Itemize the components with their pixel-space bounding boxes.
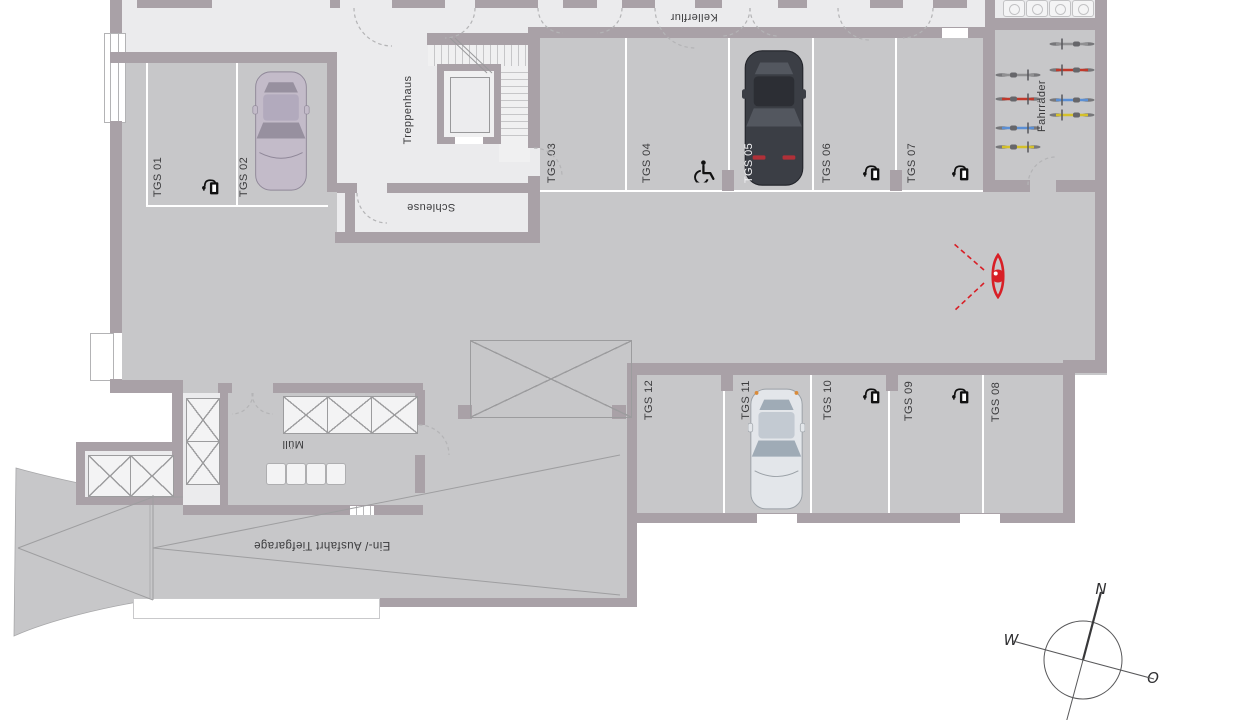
wall-segment	[76, 497, 176, 505]
wall-segment	[137, 0, 212, 8]
storage-box	[186, 398, 220, 442]
window-west-upper	[104, 33, 126, 123]
bicycle-icon	[1049, 63, 1095, 77]
viewpoint-eye-icon	[986, 253, 1010, 299]
wall-segment	[337, 183, 357, 193]
wall-segment	[387, 183, 528, 193]
wall-segment	[985, 18, 1095, 30]
wall-segment	[110, 121, 122, 333]
wall-segment	[110, 0, 122, 35]
room-label-schleuse: Schleuse	[407, 201, 455, 213]
stair-landing	[499, 140, 530, 162]
ev-charger-icon	[862, 164, 883, 182]
wall-segment	[345, 193, 355, 233]
wall-segment	[330, 0, 340, 8]
ev-charger-icon	[201, 178, 222, 196]
wall-segment	[983, 30, 995, 182]
spot-line	[895, 38, 897, 191]
bicycle-icon	[1049, 37, 1095, 51]
spot-label-tgs07: TGS 07	[906, 143, 918, 183]
wall-segment	[218, 383, 232, 393]
wall-segment	[502, 0, 538, 8]
storage-box	[130, 455, 174, 497]
bicycle-icon	[1049, 108, 1095, 122]
spot-label-tgs10: TGS 10	[822, 380, 834, 420]
wall-segment	[427, 33, 540, 45]
storage-locker	[371, 396, 418, 434]
wall-segment	[1063, 360, 1107, 373]
spot-line	[982, 375, 984, 514]
wall-segment	[627, 513, 1075, 523]
parked-car-white	[748, 386, 805, 512]
storage-locker	[327, 396, 373, 434]
ramp-label: Ein-/ Ausfahrt Tiefgarage	[254, 539, 391, 551]
corridor-floor	[540, 0, 985, 27]
wall-stub	[721, 373, 733, 391]
washing-machine	[1072, 0, 1094, 17]
compass-west-label: W	[1004, 631, 1019, 649]
spot-label-tgs08: TGS 08	[990, 382, 1002, 422]
wall-segment	[110, 52, 337, 63]
storage-box	[88, 455, 132, 497]
bicycle-icon	[995, 121, 1041, 135]
wheelchair-icon	[694, 160, 717, 183]
room-label-muell: Müll	[282, 438, 304, 450]
room-label-fahrraeder: Fahrräder	[1036, 80, 1048, 132]
ev-charger-icon	[862, 387, 883, 405]
window-west-lower	[90, 333, 114, 381]
spot-line	[540, 190, 983, 192]
room-label-kellerflur: Kellerflur	[670, 11, 717, 23]
waste-bin	[326, 463, 346, 485]
storage-locker	[283, 396, 329, 434]
spot-line	[146, 63, 148, 207]
waste-bin	[306, 463, 326, 485]
parking-row-bottom-floor	[627, 363, 1075, 523]
wall-segment	[335, 232, 540, 243]
compass-rose	[1013, 592, 1154, 720]
wall-segment	[528, 27, 995, 38]
spot-label-tgs02: TGS 02	[238, 157, 250, 197]
spot-label-tgs03: TGS 03	[546, 143, 558, 183]
washing-machine	[1049, 0, 1071, 17]
wall-segment	[695, 0, 722, 8]
wall-segment	[327, 52, 337, 192]
waste-bin	[286, 463, 306, 485]
wall-segment	[475, 0, 502, 8]
spot-line	[146, 205, 328, 207]
spot-label-tgs01: TGS 01	[152, 157, 164, 197]
spot-line	[625, 38, 627, 191]
wall-opening	[960, 514, 1000, 523]
compass-east-label: O	[1147, 669, 1159, 687]
elevator-door-gap	[455, 137, 483, 144]
spot-label-tgs04: TGS 04	[641, 143, 653, 183]
spot-line	[728, 38, 730, 191]
wall-segment	[983, 180, 1030, 192]
ev-charger-icon	[951, 387, 972, 405]
room-label-treppenhaus: Treppenhaus	[402, 76, 414, 145]
compass-north-label: N	[1095, 580, 1106, 598]
parked-car-silver	[250, 70, 312, 192]
wall-segment	[1063, 373, 1075, 523]
wall-stub	[886, 373, 898, 391]
spot-label-tgs05: TGS 05	[743, 143, 755, 183]
wall-stub	[890, 170, 902, 191]
wall-segment	[220, 393, 228, 505]
wall-segment	[76, 442, 85, 504]
washing-machine	[1003, 0, 1025, 17]
wall-segment	[76, 442, 180, 451]
garage-floorplan: Kellerflur Treppenhaus Schleuse Fahrräde…	[0, 0, 1240, 720]
wall-segment	[273, 383, 423, 393]
storage-box	[186, 441, 220, 485]
grate	[350, 506, 374, 515]
spot-label-tgs09: TGS 09	[903, 381, 915, 421]
spot-line	[888, 375, 890, 514]
bicycle-icon	[995, 68, 1041, 82]
wall-segment	[933, 0, 967, 8]
wall-stub	[722, 170, 734, 191]
bicycle-icon	[995, 140, 1041, 154]
wall-segment	[622, 0, 655, 8]
wall-segment	[183, 505, 423, 515]
spot-line	[810, 375, 812, 514]
wall-segment	[870, 0, 903, 8]
wall-segment	[778, 0, 807, 8]
wall-opening	[757, 514, 797, 523]
spot-label-tgs12: TGS 12	[643, 380, 655, 420]
wall-segment	[627, 363, 1063, 375]
garage-gate	[133, 598, 380, 619]
clearance-area	[470, 340, 632, 418]
ev-charger-icon	[951, 164, 972, 182]
spot-line	[812, 38, 814, 191]
door-threshold	[942, 28, 968, 38]
wall-segment	[415, 455, 425, 493]
stair-flight-right	[499, 66, 530, 140]
wall-segment	[528, 35, 540, 148]
spot-label-tgs11: TGS 11	[740, 380, 752, 420]
bicycle-icon	[1049, 93, 1095, 107]
waste-bin	[266, 463, 286, 485]
elevator-car	[450, 77, 490, 133]
wall-segment	[378, 598, 637, 607]
spot-label-tgs06: TGS 06	[821, 143, 833, 183]
bicycle-icon	[995, 92, 1041, 106]
wall-segment	[1095, 0, 1107, 373]
washing-machine	[1026, 0, 1048, 17]
wall-segment	[563, 0, 597, 8]
wall-segment	[392, 0, 445, 8]
spot-line	[723, 375, 725, 514]
